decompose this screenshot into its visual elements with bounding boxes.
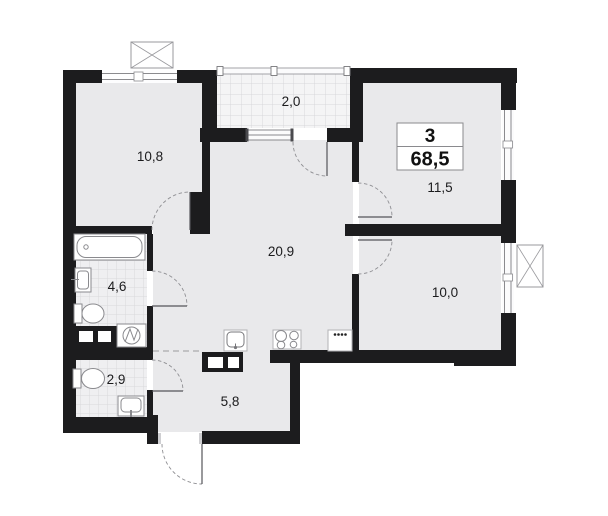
duct-cell: [98, 331, 111, 342]
toilet-tank: [74, 304, 82, 323]
apartment-info-box: 3 68,5: [397, 123, 463, 171]
vent-shaft-right-icon: [517, 245, 543, 287]
wall-segment: [63, 226, 152, 234]
appliance-dot: [337, 333, 340, 336]
wall-segment: [190, 192, 210, 234]
wc-sink-icon: [118, 396, 144, 417]
glazing-post: [344, 67, 350, 76]
duct-cell: [208, 357, 223, 368]
appliance-dot: [341, 333, 344, 336]
wall-segment: [147, 390, 153, 417]
duct-cell: [79, 331, 93, 342]
window-bedroom-top-left: [102, 70, 177, 83]
stove-icon: [273, 330, 301, 349]
wall-segment: [501, 83, 516, 110]
room-label-bedroom-top-right: 11,5: [427, 180, 452, 195]
bathtub-icon: [74, 234, 145, 260]
door-swing-arc: [162, 444, 202, 484]
room-label-bedroom-right: 10,0: [432, 285, 458, 300]
room-label-wc: 2,9: [107, 372, 126, 387]
toilet-tank: [73, 369, 81, 388]
kitchen-sink-icon: [224, 330, 247, 351]
appliance-dot: [334, 333, 337, 336]
glazing-post: [217, 67, 223, 76]
vent-shaft-top-icon: [131, 42, 173, 68]
wall-segment: [73, 347, 153, 360]
bathtub-drain: [84, 245, 88, 249]
window-bedroom-right: [502, 243, 514, 313]
door-frame: [158, 433, 161, 444]
room-label-living-kitchen: 20,9: [268, 244, 294, 259]
floor-living-kitchen: [153, 140, 353, 352]
kitchen-appliance-icon: [328, 330, 352, 351]
sink-basin: [78, 271, 89, 289]
room-label-bathroom: 4,6: [108, 279, 127, 294]
glazing-post: [271, 67, 277, 76]
window-bedroom-top-right: [502, 110, 514, 180]
window-mullion: [134, 72, 143, 81]
wall-segment: [200, 128, 247, 142]
window-mullion: [503, 274, 513, 281]
window-balcony-living: [246, 129, 294, 142]
wall-segment: [290, 352, 300, 444]
wall-segment: [454, 350, 516, 366]
wall-segment: [202, 431, 300, 444]
appliance-dot: [344, 333, 347, 336]
appliance-body: [328, 330, 352, 351]
sink-basin: [121, 398, 141, 412]
glazing-band: [217, 68, 350, 74]
window-post: [291, 129, 294, 142]
toilet-wc-icon: [73, 369, 105, 389]
toilet-bowl: [82, 304, 104, 323]
wall-segment: [352, 274, 359, 352]
toilet-bathroom-icon: [74, 304, 104, 323]
toilet-bowl: [82, 369, 105, 389]
door-frame: [199, 433, 202, 444]
wall-segment: [63, 70, 102, 83]
duct-box-bathroom: [73, 326, 117, 347]
wall-segment: [63, 417, 158, 433]
room-label-bedroom-top-left: 10,8: [137, 149, 163, 164]
window-mullion: [503, 141, 513, 148]
window-post: [246, 129, 249, 142]
balcony-glazing: [217, 67, 350, 76]
door-entrance: [158, 433, 202, 484]
washing-machine-icon: [117, 324, 146, 347]
wall-segment: [352, 83, 359, 182]
total-area-value: 68,5: [411, 149, 450, 171]
wall-segment: [345, 224, 501, 236]
wall-segment: [147, 234, 153, 271]
floor-plan-canvas: 3 68,5 10,8 2,0 11,5 20,9 10,0 4,6 2,9 5…: [0, 0, 608, 516]
duct-box-hallway: [202, 352, 243, 372]
duct-cell: [228, 357, 239, 368]
room-label-balcony: 2,0: [282, 94, 301, 109]
room-label-hallway: 5,8: [221, 394, 240, 409]
floor-bedroom-right: [359, 236, 501, 350]
rooms-count-value: 3: [425, 126, 436, 147]
wall-segment: [351, 68, 517, 83]
wall-segment: [501, 180, 516, 243]
